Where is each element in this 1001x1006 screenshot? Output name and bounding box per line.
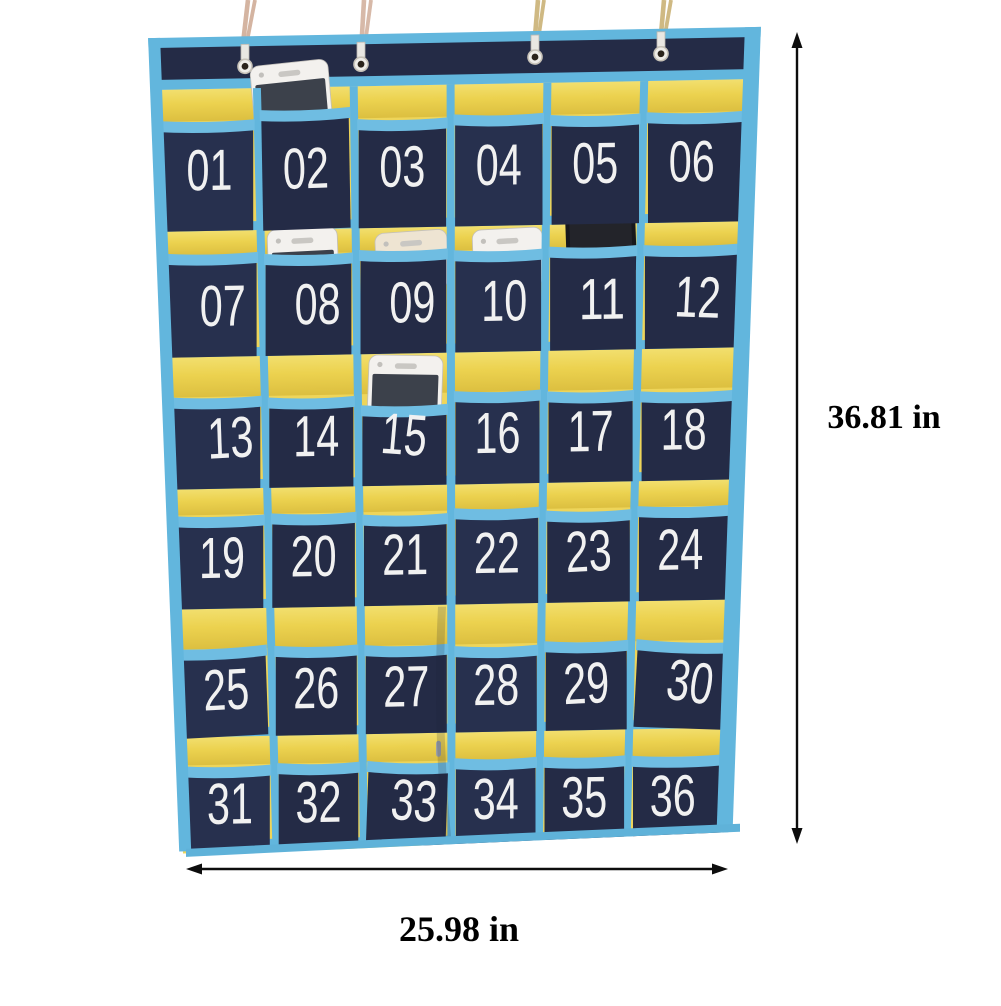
svg-text:13: 13 (206, 404, 254, 471)
svg-text:27: 27 (383, 654, 429, 720)
svg-text:28: 28 (473, 652, 519, 718)
svg-text:31: 31 (207, 771, 253, 837)
svg-text:04: 04 (476, 132, 522, 198)
svg-text:25.98 in: 25.98 in (399, 909, 519, 949)
svg-text:02: 02 (282, 135, 329, 202)
svg-text:29: 29 (562, 650, 610, 717)
svg-text:24: 24 (657, 517, 703, 583)
svg-text:20: 20 (291, 524, 337, 590)
svg-text:10: 10 (481, 268, 527, 334)
svg-text:26: 26 (293, 656, 339, 722)
svg-text:36: 36 (650, 763, 696, 829)
svg-text:34: 34 (473, 766, 519, 832)
svg-text:06: 06 (669, 129, 715, 195)
svg-text:15: 15 (379, 401, 430, 469)
svg-text:23: 23 (564, 518, 612, 585)
svg-text:14: 14 (293, 404, 339, 470)
svg-text:09: 09 (389, 270, 435, 336)
svg-text:07: 07 (200, 273, 246, 339)
svg-text:25: 25 (202, 656, 250, 723)
svg-text:36.81 in: 36.81 in (827, 399, 940, 436)
svg-text:12: 12 (673, 264, 722, 331)
svg-text:35: 35 (561, 765, 607, 831)
svg-text:32: 32 (295, 770, 341, 836)
svg-text:16: 16 (475, 400, 521, 466)
svg-text:21: 21 (382, 522, 428, 588)
svg-text:05: 05 (572, 131, 618, 197)
svg-text:18: 18 (661, 397, 707, 463)
svg-text:01: 01 (187, 138, 233, 204)
svg-text:08: 08 (295, 272, 341, 338)
svg-text:03: 03 (379, 134, 425, 200)
svg-text:33: 33 (388, 767, 439, 835)
svg-text:22: 22 (474, 520, 520, 586)
svg-text:11: 11 (579, 266, 625, 332)
svg-text:19: 19 (199, 525, 245, 591)
svg-text:17: 17 (568, 399, 614, 465)
